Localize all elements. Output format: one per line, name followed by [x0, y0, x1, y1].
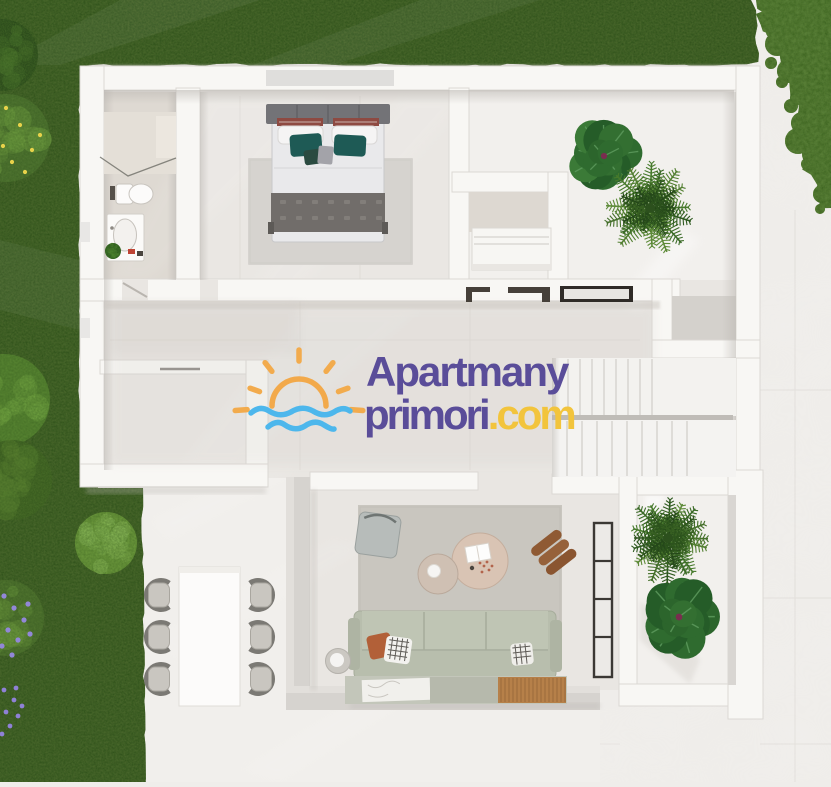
svg-text:Apartmany: Apartmany	[366, 348, 570, 395]
svg-text:primori.com: primori.com	[364, 391, 574, 438]
